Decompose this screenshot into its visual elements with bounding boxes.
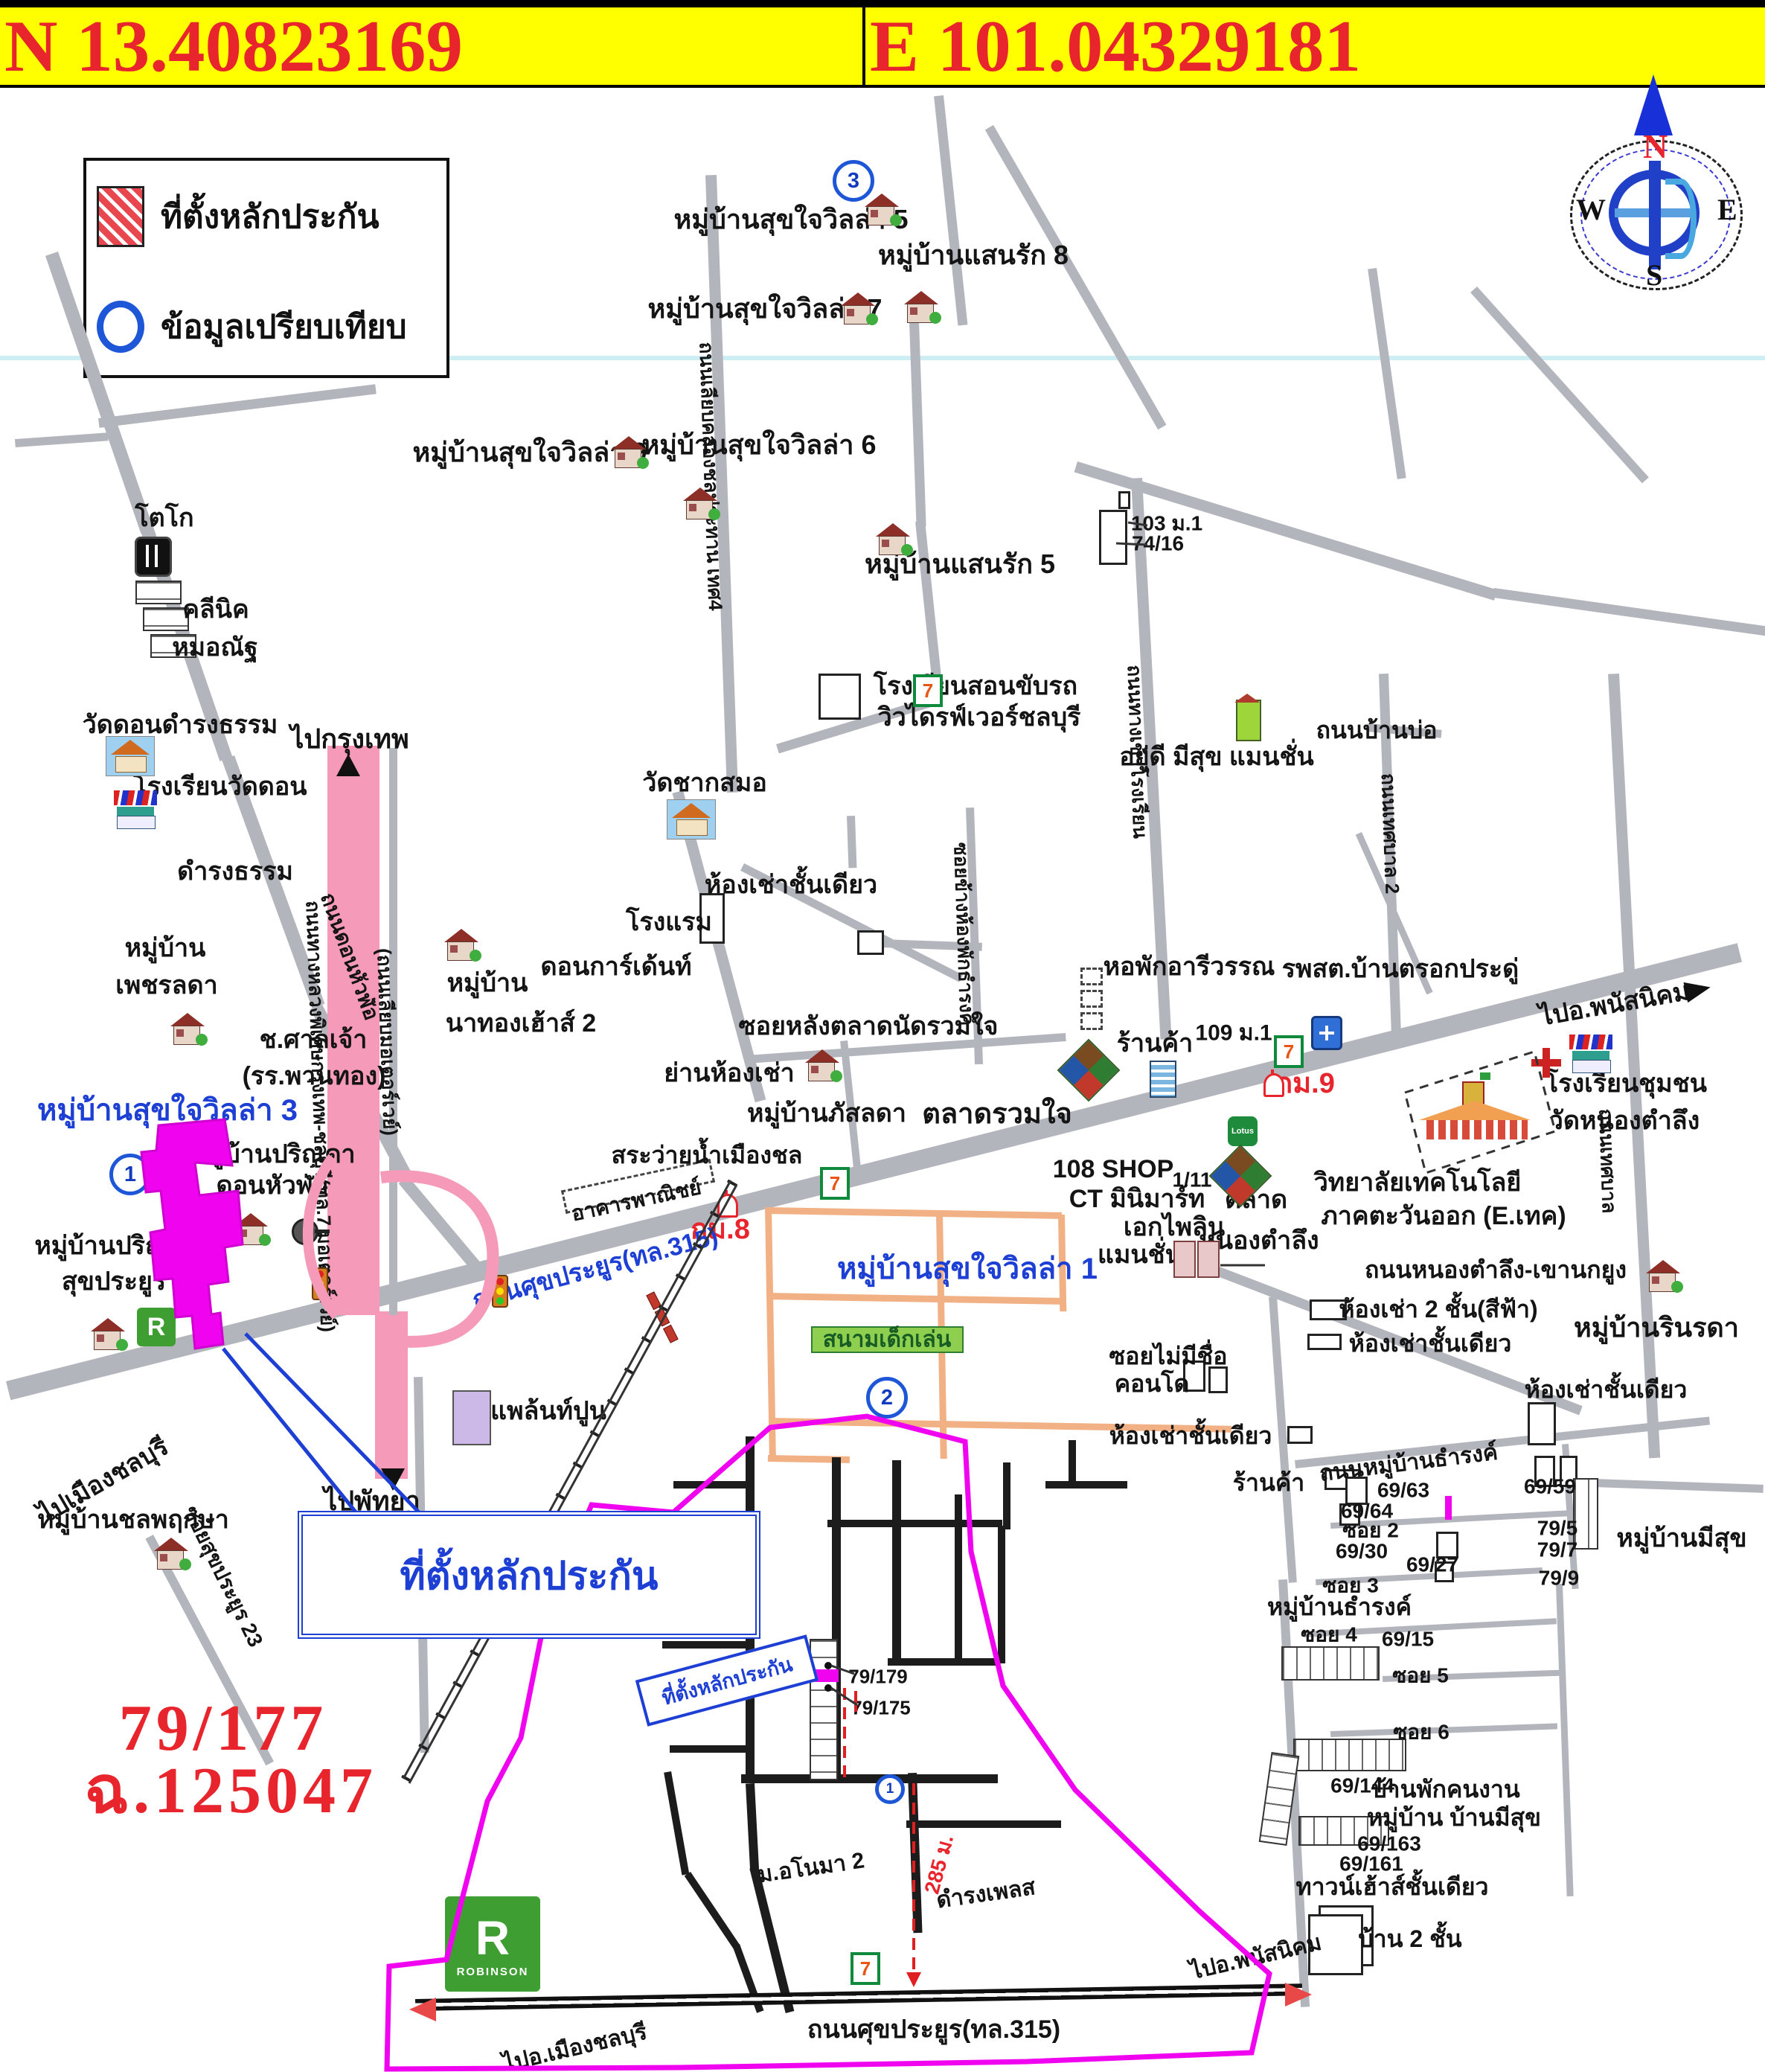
map-shapes-overlay [0, 0, 1765, 2072]
distance-dashed-line [845, 1688, 914, 1971]
callout-leader-lines [223, 1334, 420, 1514]
collateral-highlight-polygon [141, 1119, 243, 1349]
motorway-loop-west [308, 1157, 336, 1316]
temple-parcel-outline [1405, 1052, 1555, 1173]
scanned-map-page: N 13.40823169 E 101.04329181 ที่ตั้งหลัก… [0, 0, 1765, 2072]
collateral-callout-box: ที่ตั้งหลักประกัน [298, 1511, 760, 1639]
motorway-loop-east [381, 1176, 493, 1342]
